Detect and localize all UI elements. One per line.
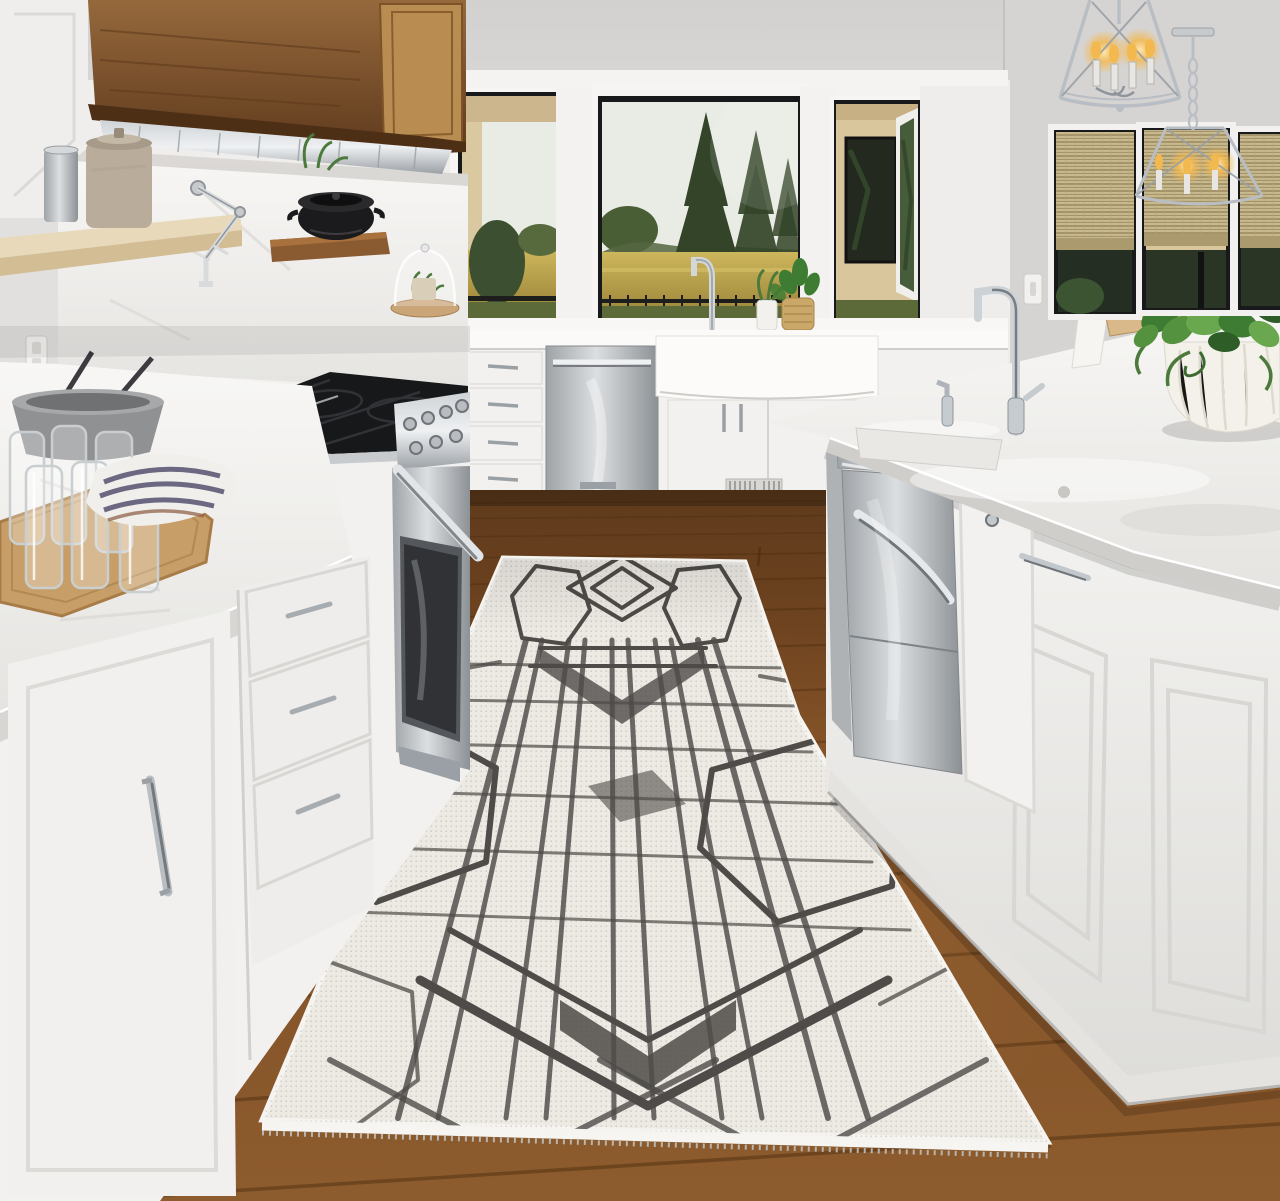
kitchen-photo — [0, 0, 1280, 1201]
white-vase — [757, 300, 777, 330]
wall-right-of-windows — [920, 86, 1008, 336]
cabinet-door-left — [8, 610, 236, 1196]
counter-drain-button — [1058, 486, 1070, 498]
steel-canister — [44, 150, 78, 222]
window-wall — [448, 70, 1008, 336]
light-switch — [1024, 274, 1042, 304]
side-window-1 — [1048, 124, 1142, 320]
stone-crock — [86, 128, 152, 228]
woven-shade-1 — [1056, 132, 1134, 248]
back-dishwasher — [546, 346, 658, 500]
side-windows — [1024, 122, 1280, 320]
window-right — [830, 96, 926, 334]
scene-root — [0, 0, 1280, 1201]
farmhouse-sink — [656, 336, 878, 403]
